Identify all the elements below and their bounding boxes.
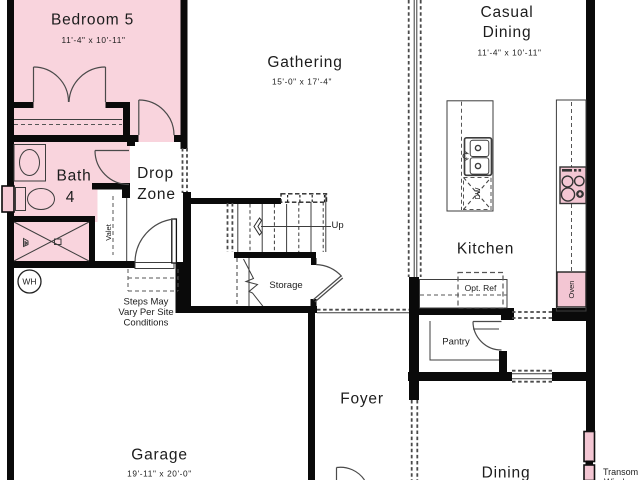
svg-text:Valet: Valet: [104, 223, 113, 240]
svg-text:Foyer: Foyer: [340, 391, 384, 408]
svg-text:Kitchen: Kitchen: [457, 241, 514, 258]
svg-text:Zone: Zone: [137, 186, 176, 203]
svg-text:19'-11" x 20'-0": 19'-11" x 20'-0": [127, 469, 192, 479]
svg-text:Gathering: Gathering: [267, 54, 342, 71]
svg-text:Pantry: Pantry: [442, 337, 470, 348]
svg-text:11'-4" x 10'-11": 11'-4" x 10'-11": [61, 35, 125, 45]
svg-text:15'-0" x 17'-4": 15'-0" x 17'-4": [272, 77, 332, 87]
svg-text:Bath: Bath: [56, 168, 91, 185]
svg-text:DW: DW: [475, 187, 482, 199]
svg-text:Drop: Drop: [137, 165, 174, 182]
svg-text:Bedroom 5: Bedroom 5: [51, 12, 134, 29]
svg-text:Steps May: Steps May: [124, 297, 169, 308]
svg-text:Dining: Dining: [483, 24, 532, 41]
svg-text:Conditions: Conditions: [124, 318, 169, 329]
svg-text:4: 4: [66, 189, 75, 206]
svg-text:Transom: Transom: [603, 467, 638, 477]
svg-text:WH: WH: [22, 277, 36, 287]
svg-text:Casual: Casual: [480, 4, 533, 21]
svg-text:Dining: Dining: [482, 465, 531, 480]
svg-text:Oven: Oven: [567, 281, 576, 299]
svg-text:Vary Per Site: Vary Per Site: [118, 307, 173, 318]
svg-text:Up: Up: [332, 220, 344, 231]
svg-text:Storage: Storage: [269, 280, 302, 291]
svg-text:Garage: Garage: [131, 447, 188, 464]
svg-text:11'-4" x 10'-11": 11'-4" x 10'-11": [477, 48, 541, 58]
svg-text:Opt. Ref: Opt. Ref: [465, 283, 497, 293]
